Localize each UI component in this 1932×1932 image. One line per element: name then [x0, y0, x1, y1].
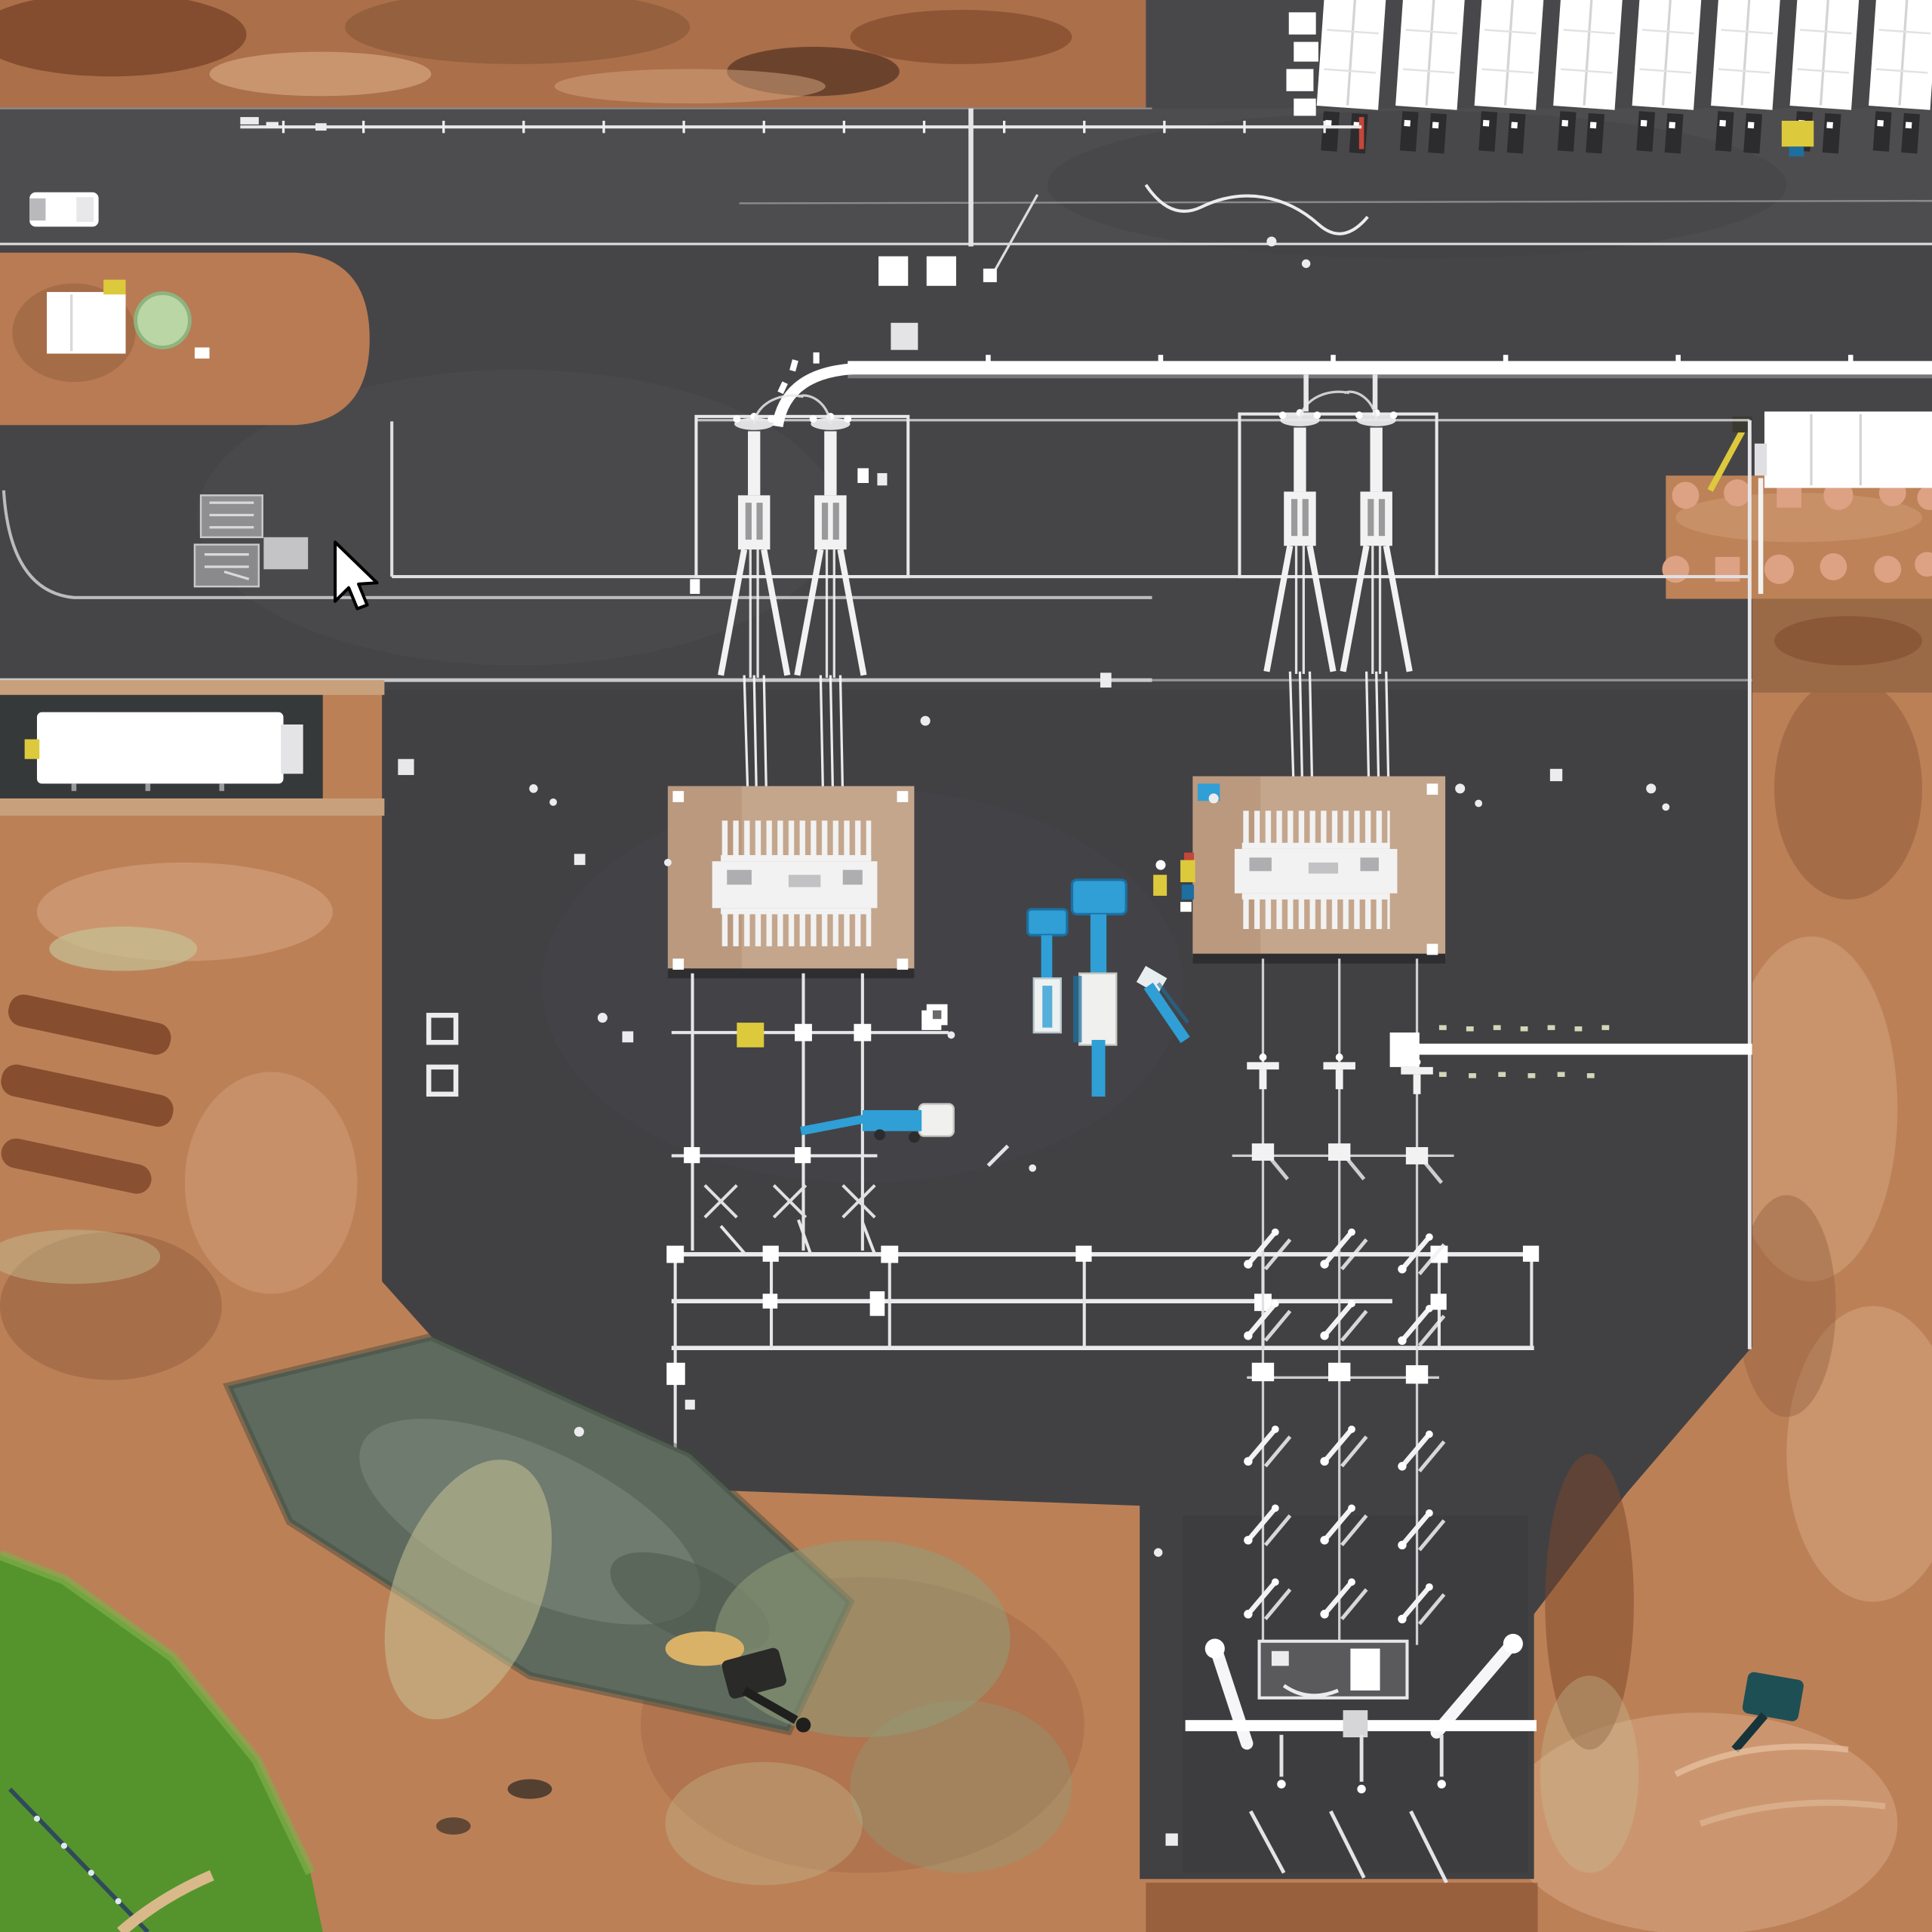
gate-line — [968, 109, 974, 247]
dirt-island-top-left — [0, 253, 370, 426]
transformer-pad-right — [1180, 777, 1445, 964]
road-plate — [927, 257, 956, 286]
aerial-photo — [0, 0, 1932, 1932]
road-plate — [878, 257, 908, 286]
truck-right — [1755, 411, 1932, 488]
yellow-equipment — [103, 280, 125, 295]
semi-trailer-left — [37, 712, 284, 784]
conduit-pipe — [1758, 478, 1764, 593]
transformer-pad-left — [668, 786, 915, 979]
transformer-left — [712, 820, 878, 946]
water-tank — [136, 294, 190, 348]
yellow-forklift — [1782, 121, 1814, 146]
equipment-structure — [1260, 1641, 1407, 1698]
site-trailer-small — [47, 292, 125, 354]
pickup-truck — [29, 192, 98, 227]
screenshot-root — [0, 0, 1932, 1932]
red-marker — [1359, 117, 1364, 149]
road-plate — [891, 323, 918, 350]
yellow-junction-box — [737, 1023, 764, 1048]
transformer-right — [1235, 811, 1398, 929]
